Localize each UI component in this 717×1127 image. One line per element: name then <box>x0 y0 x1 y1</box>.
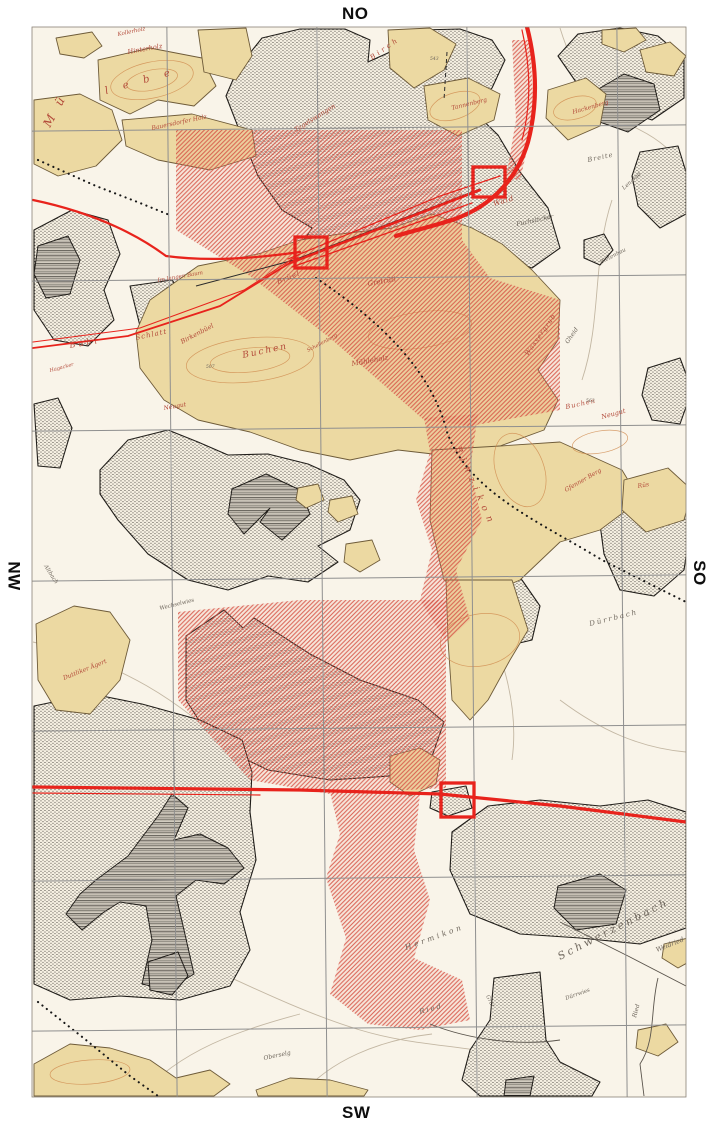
historical-map: HinterholzKollerholzM ül e b eBauersdorf… <box>0 0 717 1127</box>
map-figure-svg: HinterholzKollerholzM ül e b eBauersdorf… <box>0 0 717 1127</box>
place-label: 507 <box>206 364 215 370</box>
place-label: 543 <box>430 56 439 62</box>
place-label: 563 <box>586 398 595 404</box>
figure-canvas: NO SO SW NW HinterholzKol <box>0 0 717 1127</box>
